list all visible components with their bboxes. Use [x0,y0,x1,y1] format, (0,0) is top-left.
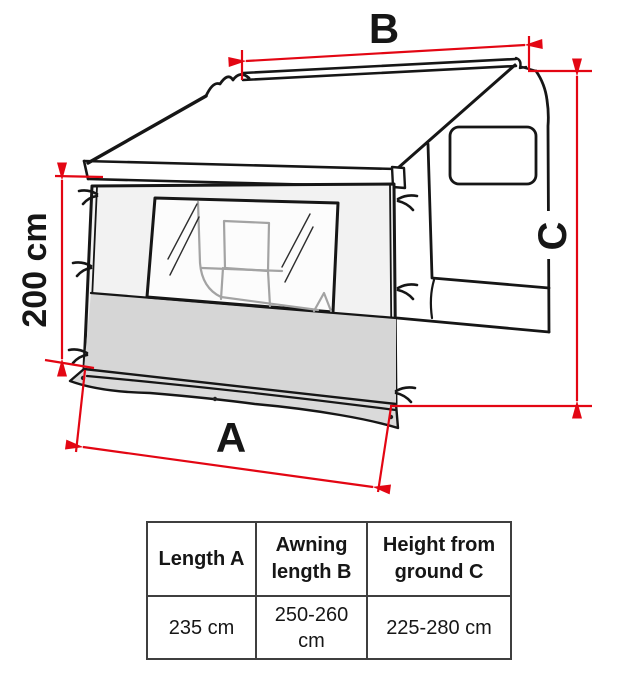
value-length-a: 235 cm [147,596,256,659]
van-window [450,127,536,184]
awning-dimension-figure: B A C 200 cm Length A Awning length B He… [0,0,620,682]
label-b: B [369,5,399,52]
dimensions-table: Length A Awning length B Height from gro… [146,521,512,660]
table-row: 235 cm 250-260 cm 225-280 cm [147,596,511,659]
table-header-height-from-ground-c: Height from ground C [367,522,511,596]
table-header-awning-length-b: Awning length B [256,522,367,596]
label-c: C [531,222,575,251]
label-200cm: 200 cm [16,212,54,327]
label-a: A [216,414,246,461]
table-header-length-a: Length A [147,522,256,596]
side-panel [69,184,417,428]
value-awning-length-b: 250-260 cm [256,596,367,659]
value-height-from-ground-c: 225-280 cm [367,596,511,659]
awning-diagram-svg: B A C 200 cm [0,0,620,520]
